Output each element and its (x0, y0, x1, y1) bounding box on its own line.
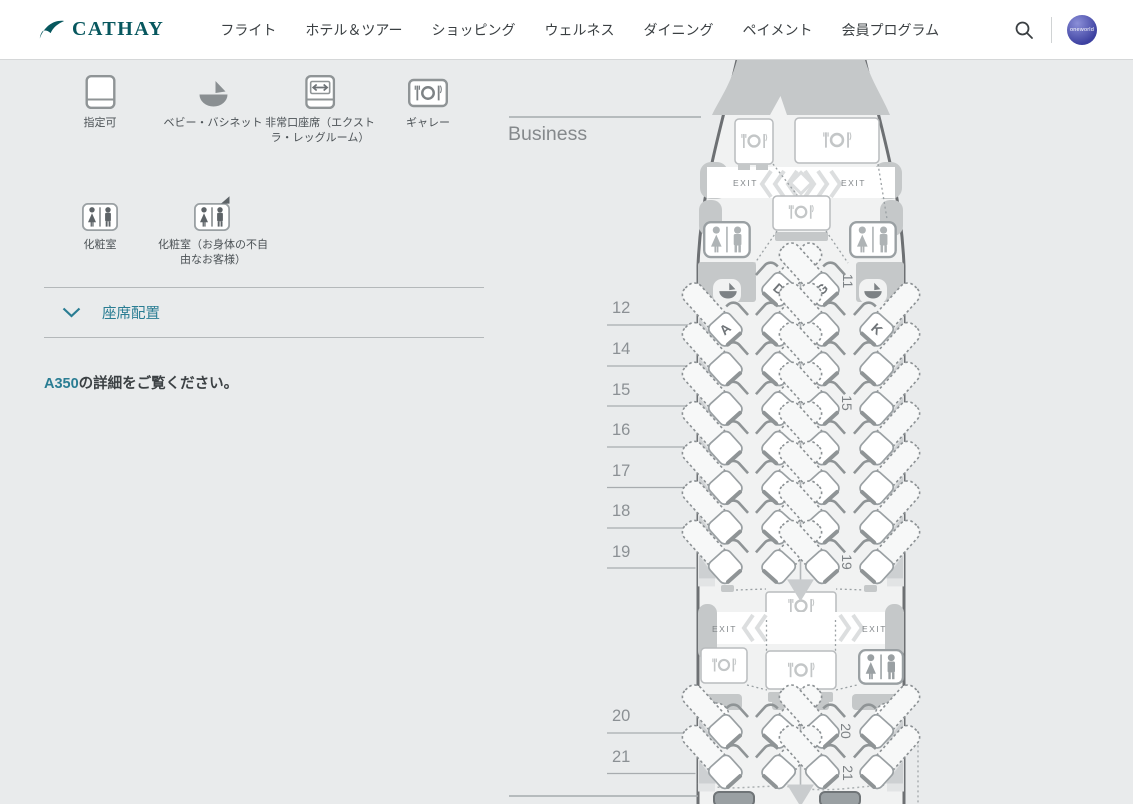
brand-logo[interactable]: CATHAY (38, 17, 164, 42)
header: CATHAY フライトホテル＆ツアーショッピングウェルネスダイニングペイメント会… (0, 0, 1133, 60)
nav-item-1[interactable]: フライト (220, 20, 276, 40)
map-row-label-21: 21 (840, 765, 856, 781)
exit-label: EXIT (841, 178, 866, 188)
main-nav: フライトホテル＆ツアーショッピングウェルネスダイニングペイメント会員プログラム (220, 20, 939, 40)
row-number-16: 16 (612, 421, 630, 439)
nav-item-4[interactable]: ウェルネス (545, 20, 615, 40)
nav-item-2[interactable]: ホテル＆ツアー (305, 20, 402, 40)
seat-map: EXIT EXIT (0, 60, 1133, 804)
oneworld-label: oneworld (1070, 27, 1094, 33)
row-number-14: 14 (612, 340, 630, 358)
exit-label: EXIT (712, 624, 737, 634)
cabin-label-business: Business (508, 123, 587, 145)
brand-wordmark: CATHAY (72, 18, 164, 41)
brushwing-icon (38, 17, 65, 42)
mid-galleys-lavatory (701, 648, 903, 689)
nav-item-5[interactable]: ダイニング (644, 20, 714, 40)
forward-exit-row: EXIT EXIT (707, 167, 895, 198)
map-row-label-20: 20 (838, 723, 854, 739)
nav-item-6[interactable]: ペイメント (743, 20, 813, 40)
row-number-19: 19 (612, 543, 630, 561)
row-number-15: 15 (612, 381, 630, 399)
map-row-label-15: 15 (839, 395, 855, 411)
search-icon[interactable] (1012, 18, 1036, 42)
ottoman-tab (864, 585, 877, 592)
nav-item-7[interactable]: 会員プログラム (842, 20, 940, 40)
row-number-12: 12 (612, 299, 630, 317)
oneworld-badge[interactable]: oneworld (1067, 15, 1097, 45)
row-number-18: 18 (612, 502, 630, 520)
nav-item-3[interactable]: ショッピング (432, 20, 516, 40)
header-divider (1051, 17, 1052, 43)
ottoman-tab (721, 585, 734, 592)
row-number-20: 20 (612, 707, 630, 725)
row-number-17: 17 (612, 462, 630, 480)
nose-galley-area (712, 60, 890, 115)
exit-label: EXIT (733, 178, 758, 188)
map-row-label-11: 11 (840, 274, 856, 289)
exit-label: EXIT (862, 624, 887, 634)
main-content: 指定可ベビー・バシネット非常口座席（エクスト ラ・レッグルーム）ギャレー化粧室化… (0, 60, 1133, 804)
row-number-21: 21 (612, 748, 630, 766)
map-row-label-19: 19 (839, 554, 855, 570)
